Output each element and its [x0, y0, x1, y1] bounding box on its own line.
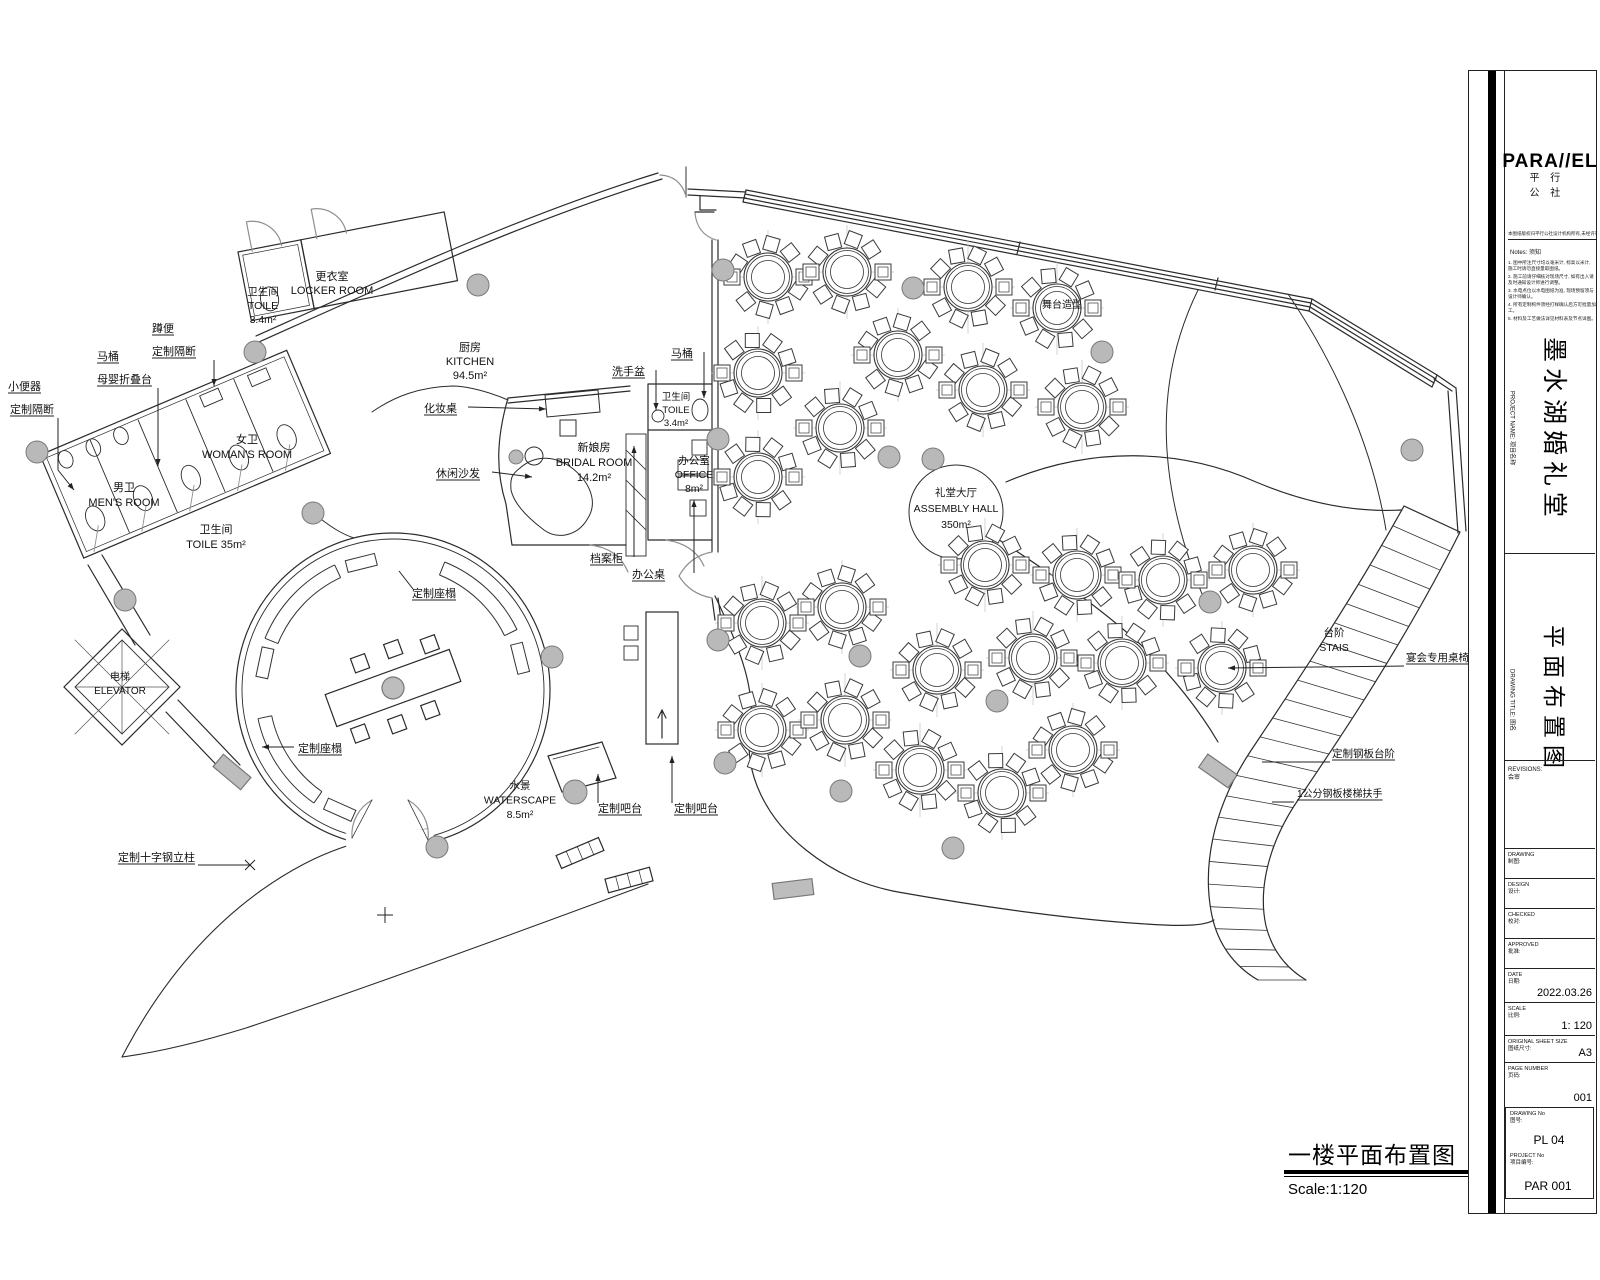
project-no: PAR 001 [1524, 1179, 1571, 1193]
plan-label: 定制座榻 [298, 741, 342, 755]
banquet-table [711, 326, 805, 420]
plan-label: 350m² [941, 519, 971, 531]
plan-label: 卫生间 [247, 285, 279, 298]
plan-label: 舞台造型 [1042, 298, 1082, 311]
field-value: 001 [1574, 1092, 1592, 1104]
banquet-table [798, 673, 892, 767]
arc-deco-2 [1288, 294, 1386, 530]
column [942, 837, 964, 859]
plan-title: 一楼平面布置图 [1288, 1136, 1456, 1170]
banquet-table [1030, 528, 1124, 622]
banquet-table [890, 623, 984, 717]
plan-label: 8m² [685, 483, 704, 495]
frame-line [1468, 70, 1469, 1213]
plan-label: 14.2m² [577, 472, 612, 484]
banquet-table [851, 308, 945, 402]
outer-wall-top [256, 173, 662, 342]
plan-title-underline [1284, 1170, 1468, 1174]
banquet-tables [711, 225, 1300, 840]
column [902, 277, 924, 299]
plan-label: 定制钢板台阶 [1332, 747, 1395, 760]
banquet-table [1075, 616, 1169, 710]
plan-label: WOMAN'S ROOM [202, 449, 292, 461]
bar-counters [548, 612, 678, 792]
plan-label: 马桶 [671, 346, 693, 360]
field-label: CHECKED校对: [1508, 912, 1535, 925]
copyright-line: 本图纸版权归平行公社设计机构所有,未经许可不得复制 [1508, 231, 1596, 240]
plan-label: 水景 [510, 780, 531, 792]
column [509, 450, 523, 464]
column [244, 341, 266, 363]
plan-label: BRIDAL ROOM [556, 457, 633, 469]
reception [236, 533, 550, 855]
column [707, 428, 729, 450]
plan-label: STAIS [1319, 642, 1349, 654]
column [114, 589, 136, 611]
wall-right [1434, 375, 1466, 533]
plan-label: 94.5m² [453, 370, 488, 382]
column [302, 502, 324, 524]
plan-label: 8.5m² [507, 809, 534, 821]
frame-heavy-bar [1488, 70, 1496, 1213]
plan-dynamic: 更衣室LOCKER ROOM卫生间TOILE3.4m²厨房KITCHEN94.5… [8, 225, 1469, 980]
wall-top-joint [688, 189, 746, 240]
banquet-table [936, 343, 1030, 437]
column [1401, 439, 1423, 461]
column [707, 629, 729, 651]
column [986, 690, 1008, 712]
column [426, 836, 448, 858]
banquet-table [1116, 533, 1210, 627]
plan-label: 定制隔断 [10, 402, 54, 416]
plan-label: ASSEMBLY HALL [914, 503, 999, 515]
plan-label: 男卫 [113, 482, 135, 494]
notes-list: 1. 图中所注尺寸均以毫米计, 标高以米计, 施工时请勿直接量取图纸。2. 施工… [1508, 260, 1596, 324]
banquet-table [1035, 360, 1129, 454]
column [922, 448, 944, 470]
field-label: ORIGINAL SHEET SIZE图纸尺寸: [1508, 1039, 1568, 1052]
plan-label: 休闲沙发 [436, 466, 480, 480]
column [26, 441, 48, 463]
plan-label: 1公分钢板楼梯扶手 [1297, 787, 1383, 800]
revisions-label: REVISIONS: 会审 [1508, 766, 1542, 782]
note-item: 2. 施工前请仔细核对现场尺寸, 如有出入请及时通知设计师进行调整。 [1508, 274, 1596, 286]
plan-title-scale: Scale:1:120 [1288, 1181, 1367, 1198]
hall-wave-upper [1006, 456, 1402, 511]
floor-plan-sheet: 更衣室LOCKER ROOM卫生间TOILE3.4m²厨房KITCHEN94.5… [0, 0, 1600, 1280]
banquet-table [793, 381, 887, 475]
plan-label: 定制隔断 [152, 344, 196, 358]
terrace [122, 829, 648, 1057]
field-label: SCALE比例: [1508, 1006, 1526, 1019]
banquet-table [921, 240, 1015, 334]
floor-plan: 更衣室LOCKER ROOM卫生间TOILE3.4m²厨房KITCHEN94.5… [0, 0, 1600, 1280]
plan-label: 宴会专用桌椅 [1406, 651, 1469, 664]
plan-label: 台阶 [1324, 626, 1346, 639]
note-item: 5. 材料及工艺做法详见材料表及节点详图。 [1508, 316, 1596, 322]
column [563, 780, 587, 804]
plan-label: 办公桌 [632, 568, 665, 581]
plan-label: LOCKER ROOM [291, 285, 374, 297]
banquet-table [938, 518, 1032, 612]
banquet-table [1026, 703, 1120, 797]
plan-label: KITCHEN [446, 356, 494, 368]
drawing-title: 平面布置图 [1539, 625, 1573, 775]
plan-label: 洗手盆 [612, 364, 645, 378]
note-item: 1. 图中所注尺寸均以毫米计, 标高以米计, 施工时请勿直接量取图纸。 [1508, 260, 1596, 272]
field-label: APPROVED批准: [1508, 942, 1539, 955]
plan-label: 马桶 [97, 349, 119, 363]
plan-label: TOILE [662, 405, 689, 416]
plan-label: 电梯 [110, 670, 130, 683]
plan-label: MEN'S ROOM [88, 497, 159, 509]
entry-door-top [660, 167, 686, 197]
plan-label: 女卫 [236, 432, 258, 446]
plan-label: 礼堂大厅 [935, 486, 977, 499]
note-item: 3. 水电点位以水电图纸为准, 现场预留须与设计师确认。 [1508, 288, 1596, 300]
plan-label: WATERSCAPE [484, 795, 556, 807]
plan-label: 卫生间 [662, 391, 691, 403]
elevator [64, 555, 240, 777]
column [849, 645, 871, 667]
plan-label: 更衣室 [316, 269, 349, 283]
plan-label: TOILE [248, 300, 278, 312]
plan-label: 卫生间 [200, 522, 233, 536]
field-label: PAGE NUMBER页码: [1508, 1066, 1548, 1079]
column [1199, 591, 1221, 613]
banquet-table [795, 560, 889, 654]
reception-table [316, 624, 470, 751]
note-item: 4. 所有定制构件须经打样确认后方可批量加工。 [1508, 302, 1596, 314]
plan-label: 蹲便 [152, 321, 174, 335]
column [714, 752, 736, 774]
column [541, 646, 563, 668]
column [467, 274, 489, 296]
banquet-table [873, 723, 967, 817]
plan-label: 定制吧台 [598, 801, 642, 815]
plan-label: 母婴折叠台 [97, 372, 152, 386]
project-name-label: PROJECT NAME: 项目名称 [1509, 391, 1518, 465]
plan-label: 定制十字钢立柱 [118, 850, 195, 864]
logo-subtitle: 平 行 公 社 [1530, 169, 1577, 199]
plan-label: ELEVATOR [94, 686, 146, 697]
plan-label: 化妆桌 [424, 401, 457, 415]
plan-label: 新娘房 [578, 440, 611, 454]
field-label: DESIGN设计: [1508, 882, 1529, 895]
plan-label: 小便器 [8, 380, 41, 393]
field-value: A3 [1579, 1047, 1592, 1059]
drawing-title-label: DRAWING TITLE: 图名 [1509, 669, 1518, 731]
plan-label: 定制吧台 [674, 801, 718, 815]
column [1091, 341, 1113, 363]
plan-label: 档案柜 [590, 551, 623, 565]
plan-label: 3.4m² [250, 314, 277, 326]
plan-label: 定制座榻 [412, 586, 456, 600]
drawing-no: PL 04 [1534, 1133, 1565, 1147]
plan-label: 3.4m² [664, 418, 688, 429]
field-value: 2022.03.26 [1537, 987, 1592, 999]
notes-title: Notes: 须知 [1510, 247, 1541, 256]
plan-label: 办公室 [678, 454, 710, 467]
field-label: DATE日期: [1508, 972, 1522, 985]
column [712, 259, 734, 281]
plan-label: OFFICE [675, 469, 714, 481]
field-value: 1: 120 [1561, 1020, 1592, 1032]
plan-label: 厨房 [459, 341, 481, 354]
banquet-table [715, 576, 809, 670]
banquet-table [955, 746, 1049, 840]
banquet-table [800, 225, 894, 319]
column [878, 446, 900, 468]
field-label: DRAWING制图: [1508, 852, 1534, 865]
project-name: 墨水湖婚礼堂 [1538, 337, 1574, 523]
plan-label: TOILE 35m² [186, 539, 246, 551]
column [830, 780, 852, 802]
banquet-table [721, 230, 815, 324]
